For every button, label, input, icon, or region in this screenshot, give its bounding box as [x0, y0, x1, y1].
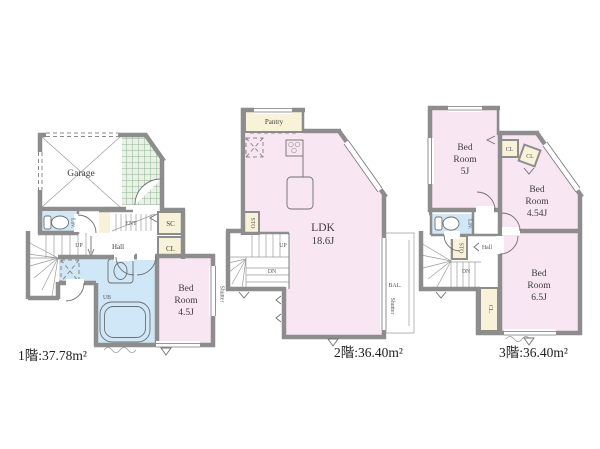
marker-triangle-1f: [161, 348, 171, 355]
sto-label-3f: STO: [458, 243, 464, 254]
floorplan-drawing: Garage Lav. ENT SC CL Hall UP UB Bed Roo…: [0, 0, 600, 449]
bedroom1f-label-line1: Bed: [178, 284, 194, 294]
bedroom454-label-line1: Bed: [529, 185, 545, 195]
floor-1-plan: Garage Lav. ENT SC CL Hall UP UB Bed Roo…: [18, 130, 225, 363]
garage-label: Garage: [67, 169, 94, 179]
cl-label-1f: CL: [166, 245, 175, 253]
floor-2-plan: Pantry STO UP DN LDK 18.6J BAL. Shutter …: [226, 106, 414, 360]
entrance-step: [99, 212, 110, 233]
window-bedroom1f-right: [209, 266, 217, 316]
cl-label-3f-tall: CL.: [487, 305, 493, 314]
bedroom1f-label-line2: Room: [174, 296, 198, 306]
up-label-2f: UP: [279, 243, 286, 249]
bedroom454-label-line2: Room: [525, 197, 549, 207]
bedroom5-label-line3: 5J: [461, 167, 470, 177]
cl-label-3f-a: CL: [506, 147, 514, 153]
dn-label-3f: DN: [462, 269, 471, 275]
hall-label-1f: Hall: [112, 243, 124, 251]
dn-label-2f: DN: [268, 269, 277, 275]
window-2f-top: [254, 106, 292, 114]
lav-label-3f: Lav.: [467, 219, 473, 230]
awning-mark-1f: [104, 348, 136, 353]
floor3-caption: 3階:36.40m²: [499, 345, 568, 360]
bedroom65-label-line2: Room: [527, 281, 551, 291]
casement-marks-2f: [276, 296, 281, 322]
garage-side-opening: [36, 152, 44, 190]
shutter-label-1f: Shutter: [219, 286, 225, 303]
bedroom65-label-line3: 6.5J: [531, 293, 547, 303]
lav-label-1f: Lav.: [70, 218, 76, 229]
balcony-label: BAL.: [388, 283, 402, 289]
bedroom5-label-line2: Room: [453, 155, 477, 165]
sc-label: SC: [166, 220, 175, 228]
unit-bath-room: [96, 284, 156, 346]
hall-label-3f: Hall: [482, 245, 492, 251]
shutter-label-2f: Shutter: [389, 298, 395, 315]
ldk-label-line2: 18.6J: [312, 236, 334, 247]
window-2f-balcony: [380, 238, 388, 330]
window-3f-top: [448, 104, 482, 112]
window-3f-left: [426, 138, 434, 184]
toilet-icon-3f: [435, 217, 459, 230]
floor-3-plan: Bed Room 5J CL CL Bed Room 4.54J Lav. ST…: [419, 104, 582, 360]
window-3f-bottom: [504, 329, 556, 337]
ent-label: ENT: [125, 221, 137, 227]
bedroom65-label-line1: Bed: [531, 269, 547, 279]
cl-label-3f-b: CL: [526, 154, 534, 160]
bedroom1f-label-line3: 4.5J: [178, 308, 194, 318]
sto-label-2f: STO: [249, 218, 255, 229]
marker-triangle-3f: [524, 338, 534, 345]
ub-label: UB: [103, 295, 111, 301]
floor2-caption: 2階:36.40m²: [334, 345, 403, 360]
up-label-1f: UP: [75, 243, 82, 249]
floor1-caption: 1階:37.78m²: [18, 348, 87, 363]
bedroom454-label-line3: 4.54J: [527, 209, 548, 219]
floorplan-page: Garage Lav. ENT SC CL Hall UP UB Bed Roo…: [0, 0, 600, 449]
ldk-label-line1: LDK: [311, 222, 335, 234]
toilet-icon-1f: [44, 216, 69, 229]
bedroom5-label-line1: Bed: [457, 143, 473, 153]
pantry-label: Pantry: [265, 118, 284, 126]
hall-arrow-3f: [474, 243, 479, 251]
